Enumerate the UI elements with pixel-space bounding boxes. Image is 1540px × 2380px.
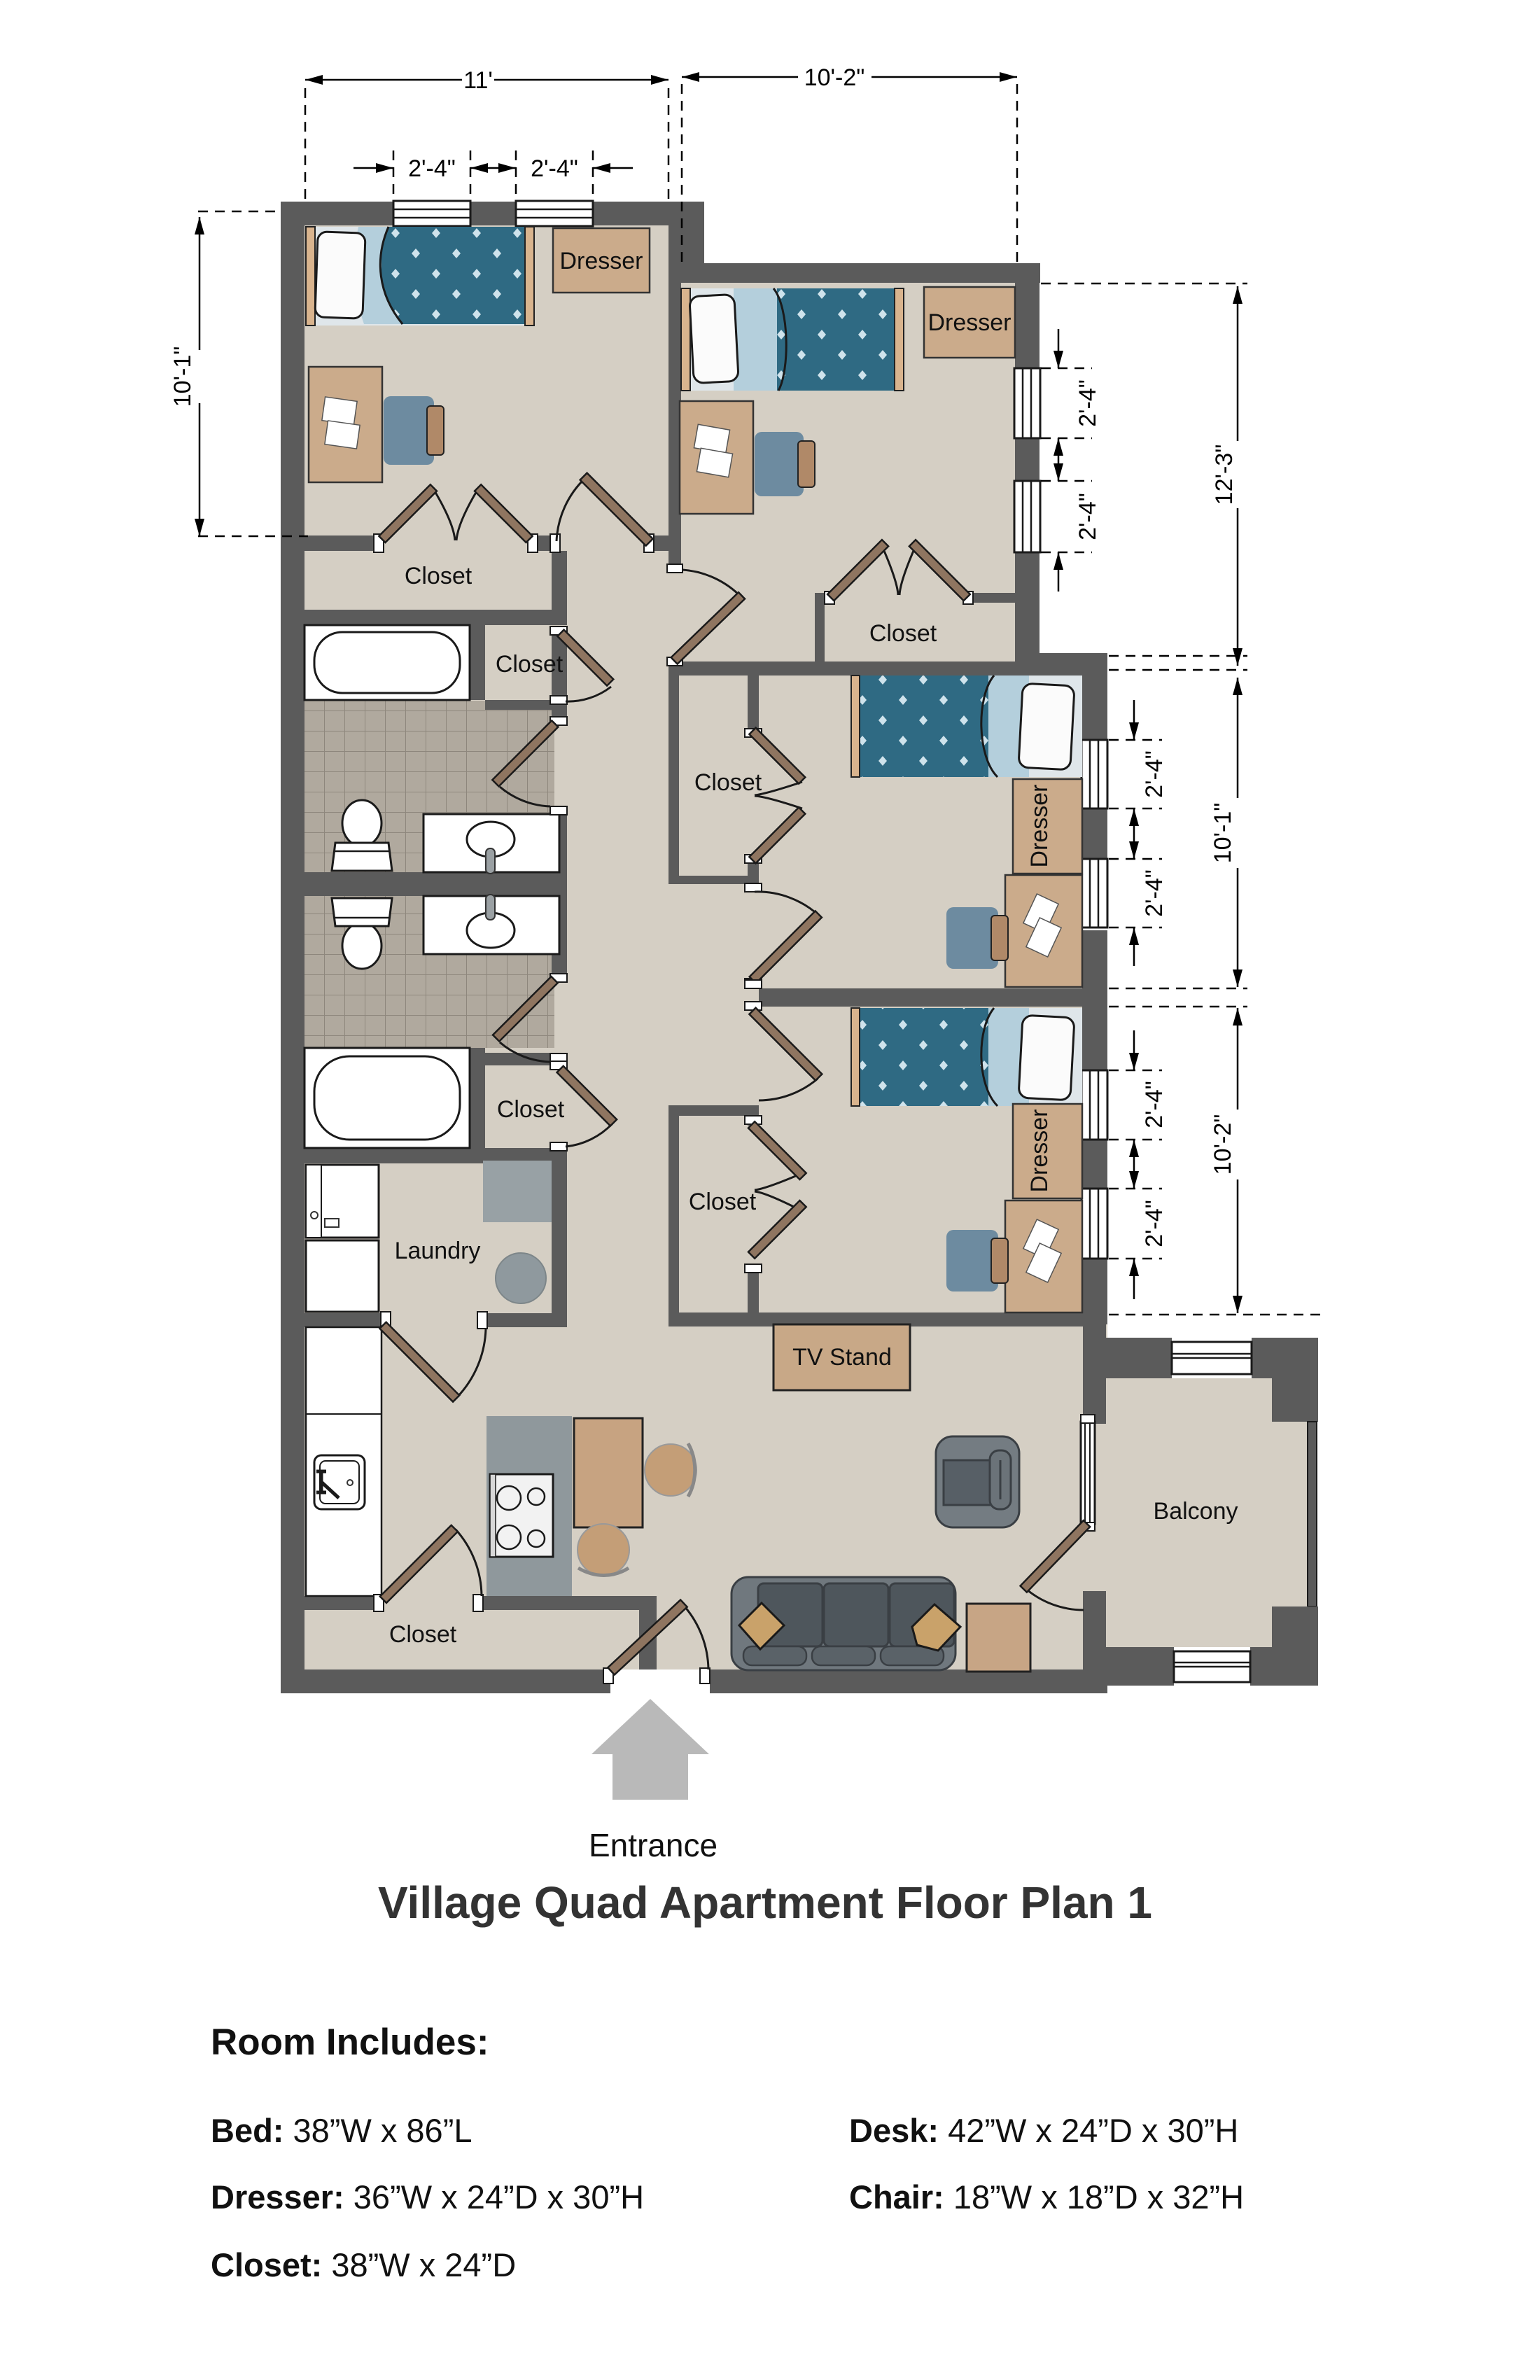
svg-text:Closet: Closet <box>496 651 563 678</box>
svg-text:Closet: Closet <box>689 1189 757 1215</box>
svg-text:Closet: Closet <box>694 769 762 796</box>
svg-text:Village Quad Apartment Floor P: Village Quad Apartment Floor Plan 1 <box>378 1877 1152 1928</box>
svg-text:2'-4": 2'-4" <box>1141 1081 1168 1128</box>
svg-text:2'-4": 2'-4" <box>1141 1200 1168 1247</box>
svg-text:2'-4": 2'-4" <box>1074 493 1101 540</box>
svg-text:Laundry: Laundry <box>395 1238 481 1264</box>
svg-text:10'-1": 10'-1" <box>169 346 196 407</box>
svg-text:Dresser: Dresser <box>927 309 1011 336</box>
svg-text:Room Includes:: Room Includes: <box>211 2022 489 2063</box>
svg-text:Balcony: Balcony <box>1154 1498 1238 1525</box>
svg-text:2'-4": 2'-4" <box>408 155 456 182</box>
svg-text:2'-4": 2'-4" <box>1074 379 1101 427</box>
svg-text:Dresser: Dresser <box>1026 784 1053 867</box>
svg-text:Closet: Closet <box>497 1096 565 1123</box>
svg-text:10'-1": 10'-1" <box>1210 803 1236 864</box>
svg-text:Dresser: 36”W x 24”D x 30”H: Dresser: 36”W x 24”D x 30”H <box>211 2178 644 2215</box>
svg-text:10'-2": 10'-2" <box>804 64 865 91</box>
svg-text:Closet: Closet <box>389 1621 457 1648</box>
svg-text:2'-4": 2'-4" <box>531 155 578 182</box>
svg-text:Bed: 38”W x 86”L: Bed: 38”W x 86”L <box>211 2112 472 2149</box>
svg-text:12'-3": 12'-3" <box>1211 444 1238 505</box>
svg-text:2'-4": 2'-4" <box>1141 869 1168 917</box>
svg-text:2'-4": 2'-4" <box>1141 750 1168 798</box>
svg-text:Entrance: Entrance <box>589 1827 717 1863</box>
svg-text:Chair: 18”W x 18”D x 32”H: Chair: 18”W x 18”D x 32”H <box>849 2178 1244 2215</box>
svg-text:TV Stand: TV Stand <box>792 1344 892 1371</box>
svg-text:Dresser: Dresser <box>559 248 643 274</box>
svg-text:Closet: 38”W x 24”D: Closet: 38”W x 24”D <box>211 2246 516 2283</box>
svg-text:Closet: Closet <box>869 620 937 647</box>
svg-text:10'-2": 10'-2" <box>1210 1114 1236 1175</box>
svg-text:Closet: Closet <box>405 563 472 589</box>
svg-text:11': 11' <box>463 67 493 94</box>
svg-text:Dresser: Dresser <box>1026 1109 1053 1192</box>
svg-text:Desk: 42”W x 24”D x 30”H: Desk: 42”W x 24”D x 30”H <box>849 2112 1238 2149</box>
